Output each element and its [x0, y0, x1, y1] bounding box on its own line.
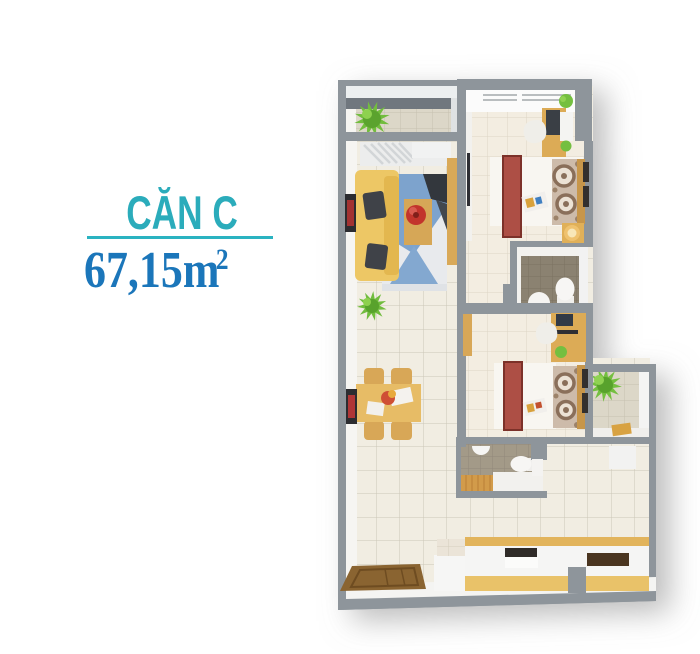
svg-text:CĂN C: CĂN C [126, 186, 238, 239]
svg-text:67,15m: 67,15m [84, 242, 219, 299]
svg-text:2: 2 [216, 243, 229, 276]
